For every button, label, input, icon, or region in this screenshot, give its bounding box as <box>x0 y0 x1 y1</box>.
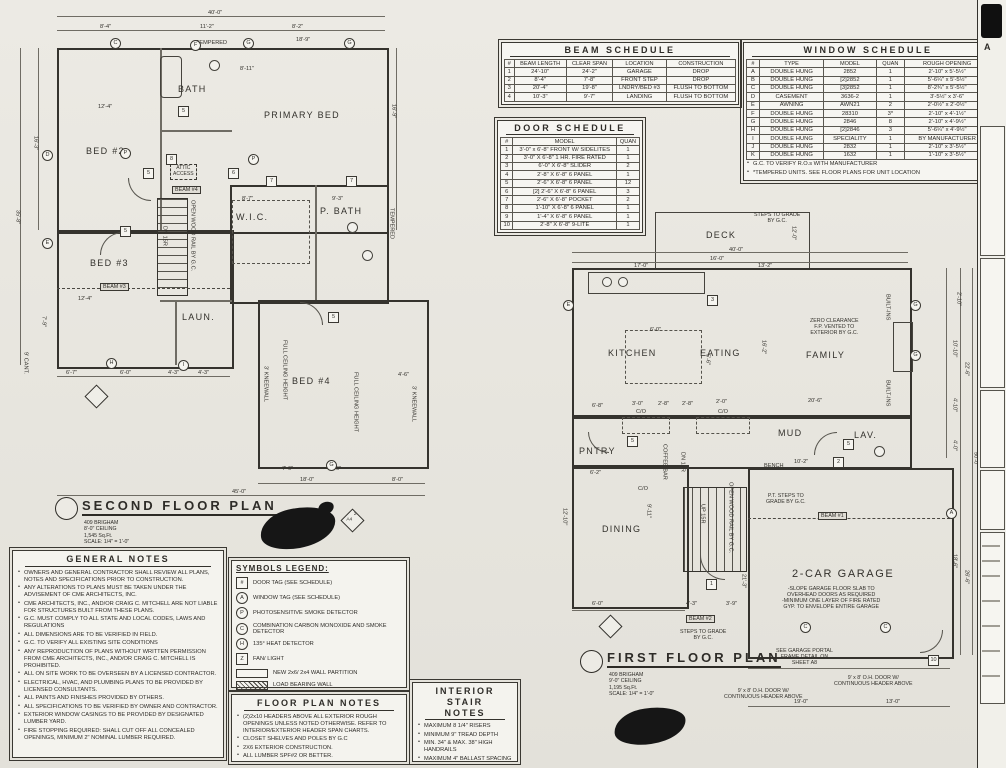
table-cell: H <box>747 126 760 134</box>
plan-label: 2'-10" <box>955 292 961 306</box>
legend-label: PHOTOSENSITIVE SMOKE DETECTOR <box>253 610 358 616</box>
section-marker-number: 2 <box>354 512 357 517</box>
table-cell: 3'-0" x 6'-8" FRONT W/ SIDELITES <box>513 146 617 154</box>
table-cell: FLUSH TO BOTTOM <box>666 84 735 92</box>
room-label-mud: MUD <box>778 428 802 438</box>
table-cell: 1632 <box>824 151 876 159</box>
plan-label: G <box>910 300 921 311</box>
table-cell: 1 <box>617 146 640 154</box>
garage-notes: -SLOPE GARAGE FLOOR SLAB TO OVERHEAD DOO… <box>782 586 880 610</box>
plan-label: E <box>563 300 574 311</box>
plan-label: 10 <box>928 655 939 666</box>
titleblock-text-bar <box>982 600 1000 602</box>
table-row: 6[2] 2'-6" X 6'-8" 6 PANEL3 <box>501 188 640 196</box>
table-cell: 12 <box>617 179 640 187</box>
plan-label: 2'-8" <box>658 401 669 407</box>
table-cell: 19'-8" <box>566 84 612 92</box>
table-cell: DROP <box>666 68 735 76</box>
table-cell: LNDRY/BED #3 <box>613 84 666 92</box>
note-item: G.C. MUST COMPLY TO ALL STATE AND LOCAL … <box>17 616 219 630</box>
table-row: KDOUBLE HUNG163211'-10" x 3'-5½" <box>747 151 990 159</box>
table-row: CDOUBLE HUNG[3]285218'-2¾" x 5'-5½" <box>747 84 990 92</box>
table-cell: 5 <box>501 179 513 187</box>
plan-label: 5 <box>627 436 638 447</box>
door-schedule: DOOR SCHEDULE #MODELQUAN13'-0" x 6'-8" F… <box>497 120 643 233</box>
plan-label: STEPS TO GRADE BY G.C. <box>754 212 800 224</box>
note-item: (2)2x10 HEADERS ABOVE ALL EXTERIOR ROUGH… <box>236 714 402 735</box>
table-row: IDOUBLE HUNGSPECIALITY1BY MANUFACTURER <box>747 135 990 143</box>
table-cell: 2'-8" X 6'-8" 6 PANEL <box>513 171 617 179</box>
interior-stair-notes-list: MAXIMUM 8 1/4" RISERSMINIMUM 9" TREAD DE… <box>417 723 513 763</box>
table-cell: 3'-0" X 6'-8" 1 HR. FIRE RATED <box>513 154 617 162</box>
table-cell: 6'-0" X 6'-8" SLIDER <box>513 162 617 170</box>
table-row: BDOUBLE HUNG[2]285215'-6¼" x 5'-5½" <box>747 76 990 84</box>
plan-label: 13'-0" <box>886 699 900 705</box>
table-cell: 20'-4" <box>514 84 566 92</box>
table-row: 320'-4"19'-8"LNDRY/BED #3FLUSH TO BOTTOM <box>505 84 736 92</box>
note-item: SCALE: 1/4" = 1'-0" <box>609 691 654 697</box>
titleblock-box <box>980 390 1005 468</box>
legend-label: WINDOW TAG (SEE SCHEDULE) <box>253 595 340 601</box>
column-header: CLEAR SPAN <box>566 60 612 68</box>
plan-label: 12'-0" <box>790 226 796 240</box>
table-cell: 2 <box>617 162 640 170</box>
plan-label: 21'-3" <box>740 574 746 588</box>
table-cell: 1'-10" X 6'-8" 6 PANEL <box>513 204 617 212</box>
note-item: EXTERIOR WINDOW CASINGS TO BE PROVIDED B… <box>17 712 219 726</box>
plan-label: 6'-8" <box>592 403 603 409</box>
titleblock-strip: A <box>977 0 1006 768</box>
legend-item: H135° HEAT DETECTOR <box>236 638 402 650</box>
table-cell: 2 <box>501 154 513 162</box>
room-label-kitchen: KITCHEN <box>608 348 657 358</box>
legend-label: FAN/ LIGHT <box>253 656 284 662</box>
table-cell: AWNING <box>759 101 823 109</box>
table-cell: 1 <box>617 171 640 179</box>
note-item: SCALE: 1/4" = 1'-0" <box>84 539 129 545</box>
plan-label: A <box>946 508 957 519</box>
table-cell: 9'-7" <box>566 93 612 101</box>
table-row: DCASEMENT3636-213'-5½" x 3'-6" <box>747 93 990 101</box>
table-cell: DROP <box>666 76 735 84</box>
garage-portal-note: SEE GARAGE PORTAL FRAME DETAIL ON SHEET … <box>776 648 833 666</box>
note-item: ALL PAINTS AND FINISHES PROVIDED BY OTHE… <box>17 695 219 702</box>
table-row: 81'-10" X 6'-8" 6 PANEL1 <box>501 204 640 212</box>
table-cell: 1 <box>505 68 515 76</box>
legend-label: DOOR TAG (SEE SCHEDULE) <box>253 580 332 586</box>
titleblock-box <box>980 532 1005 704</box>
plan-label: C/O <box>638 486 648 492</box>
column-header: TYPE <box>759 60 823 68</box>
table-cell: 3 <box>501 162 513 170</box>
plan-label: OPEN WOOD RAIL BY G.C. <box>727 482 733 553</box>
note-item: ALL DIMENSIONS ARE TO BE VERIFIED IN FIE… <box>17 632 219 639</box>
floor-plan-notes-title: FLOOR PLAN NOTES <box>244 698 394 711</box>
plan-label: 13'-2" <box>758 263 772 269</box>
table-cell: 2 <box>617 196 640 204</box>
symbols-legend-list: #DOOR TAG (SEE SCHEDULE)AWINDOW TAG (SEE… <box>236 577 402 690</box>
note-item: ELECTRICAL, HVAC, AND PLUMBING PLANS TO … <box>17 680 219 694</box>
table-cell: 7'-8" <box>566 76 612 84</box>
table-row: 410'-3"9'-7"LANDINGFLUSH TO BOTTOM <box>505 93 736 101</box>
titleblock-text-bar <box>982 560 1000 562</box>
plan-label: C <box>800 622 811 633</box>
first-floor-info: 409 BRIGHAM9'-0" CEILING1,195 Sq.Ft.SCAL… <box>609 672 654 697</box>
column-header: QUAN <box>876 60 905 68</box>
table-cell: AWN21 <box>824 101 876 109</box>
fireplace-note: ZERO CLEARANCE F.P. VENTED TO EXTERIOR B… <box>810 318 859 336</box>
note-item: ANY REPRODUCTION OF PLANS WITHOUT WRITTE… <box>17 649 219 670</box>
plan-label: 2 <box>833 457 844 468</box>
table-cell: GARAGE <box>613 68 666 76</box>
table-cell: DOUBLE HUNG <box>759 76 823 84</box>
beam-schedule-title: BEAM SCHEDULE <box>510 44 730 57</box>
table-row: 91'-4" X 6'-8" 6 PANEL1 <box>501 213 640 221</box>
note-item: FIRE STOPPING REQUIRED: SHALL CUT OFF AL… <box>17 728 219 742</box>
table-cell: [3]2852 <box>824 84 876 92</box>
note-item: OWNERS AND GENERAL CONTRACTOR SHALL REVI… <box>17 570 219 584</box>
plan-label: G <box>910 350 921 361</box>
titleblock-box <box>980 258 1005 388</box>
table-cell: 2 <box>876 101 905 109</box>
architect-logo <box>981 4 1002 38</box>
note-item: MAXIMUM 8 1/4" RISERS <box>417 723 513 730</box>
table-cell: 2846 <box>824 118 876 126</box>
table-cell: C <box>747 84 760 92</box>
table-cell: 6 <box>501 188 513 196</box>
plan-label: 6'-2" <box>590 470 601 476</box>
table-row: HDOUBLE HUNG[2]284635'-6¼" x 4'-9½" <box>747 126 990 134</box>
table-row: 13'-0" x 6'-8" FRONT W/ SIDELITES1 <box>501 146 640 154</box>
table-cell: E <box>747 101 760 109</box>
note-item: G.C. TO VERIFY R.O.s WITH MANUFACTURER <box>746 161 990 168</box>
plan-label: STEPS TO GRADE BY G.C. <box>680 629 726 641</box>
table-cell: 2'-6" X 6'-8" 6 PANEL <box>513 179 617 187</box>
table-cell: 1 <box>876 151 905 159</box>
plan-label: 17'-0" <box>634 263 648 269</box>
oh-door-note: 9' x 8' O.H. DOOR W/ CONTINUOUS HEADER A… <box>724 688 803 700</box>
plan-label: COFFEE BAR <box>661 444 667 480</box>
symbols-legend-title: SYMBOLS LEGEND: <box>236 564 402 573</box>
general-notes: GENERAL NOTES OWNERS AND GENERAL CONTRAC… <box>12 550 224 758</box>
titleblock-box <box>980 470 1005 530</box>
table-cell: 1 <box>876 135 905 143</box>
legend-label: NEW 2x6/ 2x4 WALL PARTITION <box>273 670 357 676</box>
plan-label: 18'-6" <box>951 554 957 568</box>
plan-label: 5 <box>843 439 854 450</box>
floor-plan-notes: FLOOR PLAN NOTES (2)2x10 HEADERS ABOVE A… <box>231 694 407 762</box>
beam-schedule: BEAM SCHEDULE #BEAM LENGTHCLEAR SPANLOCA… <box>501 42 739 105</box>
plan-label: 26'-6" <box>963 570 969 584</box>
note-item: CME ARCHITECTS, INC., AND/OR CRAIG C. MI… <box>17 601 219 615</box>
fan-light-symbol: Z <box>236 653 248 665</box>
general-notes-title: GENERAL NOTES <box>25 554 211 567</box>
co-smoke-detector-symbol: C <box>236 623 248 635</box>
table-cell: 2'-6" X 6'-8" POCKET <box>513 196 617 204</box>
plan-label: 4'-3" <box>686 601 697 607</box>
table-row: ADOUBLE HUNG285212'-10" x 5'-5½" <box>747 68 990 76</box>
table-cell: 10 <box>501 221 513 229</box>
plan-label: C/O <box>718 409 728 415</box>
column-header: MODEL <box>513 138 617 146</box>
plan-label: 22'-6" <box>963 362 969 376</box>
plan-label: 1 <box>706 579 717 590</box>
plan-label: UP 15R <box>699 504 705 524</box>
table-cell: 3636-2 <box>824 93 876 101</box>
symbols-legend: SYMBOLS LEGEND: #DOOR TAG (SEE SCHEDULE)… <box>231 560 407 688</box>
legend-item: LOAD BEARING WALL <box>236 681 402 690</box>
table-row: EAWNINGAWN2122'-0½" x 2'-0½" <box>747 101 990 109</box>
column-header: BEAM LENGTH <box>514 60 566 68</box>
table-cell: 8 <box>876 118 905 126</box>
note-item: ALL SPECIFICATIONS TO BE VERIFIED BY OWN… <box>17 704 219 711</box>
table-cell: LANDING <box>613 93 666 101</box>
column-header: # <box>501 138 513 146</box>
column-header: MODEL <box>824 60 876 68</box>
table-row: 52'-6" X 6'-8" 6 PANEL12 <box>501 179 640 187</box>
room-label-pantry: PNTRY <box>579 446 616 456</box>
titleblock-letter: A <box>984 42 991 52</box>
plan-label: BUILT-INS <box>884 380 890 406</box>
note-item: MAXIMUM 4" BALLAST SPACING <box>417 756 513 763</box>
door-tag-symbol: # <box>236 577 248 589</box>
room-label-dining: DINING <box>602 524 641 534</box>
table-cell: 2'-8" X 6'-8" 9-LITE <box>513 221 617 229</box>
plan-label: 6'-0" <box>592 601 603 607</box>
drawing-sheet: BED #2BATHPRIMARY BEDW.I.C.P. BATHBED #3… <box>0 0 1006 768</box>
plan-label: BENCH <box>764 463 784 469</box>
table-row: 36'-0" X 6'-8" SLIDER2 <box>501 162 640 170</box>
table-cell: CASEMENT <box>759 93 823 101</box>
note-item: *TEMPERED UNITS. SEE FLOOR PLANS FOR UNI… <box>746 170 990 177</box>
table-cell: 10'-3" <box>514 93 566 101</box>
second-floor-title: SECOND FLOOR PLAN <box>82 498 277 516</box>
interior-stair-notes-title: INTERIOR STAIR NOTES <box>425 686 505 720</box>
plan-label: 19'-0" <box>794 699 808 705</box>
titleblock-text-bar <box>982 625 1000 627</box>
beam1-label: BEAM #1 <box>818 512 847 520</box>
table-cell: 1 <box>876 93 905 101</box>
titleblock-text-bar <box>982 675 1000 677</box>
plan-label: 20'-6" <box>808 398 822 404</box>
plan-label: 16'-0" <box>710 256 724 262</box>
plan-label: 4'-0" <box>951 440 957 451</box>
table-cell: 1 <box>617 221 640 229</box>
plan-label: 2'-0" <box>716 399 727 405</box>
legend-item: AWINDOW TAG (SEE SCHEDULE) <box>236 592 402 604</box>
window-schedule-footnotes: G.C. TO VERIFY R.O.s WITH MANUFACTURER*T… <box>746 161 990 177</box>
interior-stair-notes: INTERIOR STAIR NOTES MAXIMUM 8 1/4" RISE… <box>412 682 518 762</box>
legend-item: NEW 2x6/ 2x4 WALL PARTITION <box>236 669 402 678</box>
table-cell: DOUBLE HUNG <box>759 143 823 151</box>
note-item: G.C. TO VERIFY ALL EXISTING SITE CONDITI… <box>17 640 219 647</box>
note-item: MINIMUM 9" TREAD DEPTH <box>417 732 513 739</box>
room-label-deck: DECK <box>706 230 736 240</box>
smoke-detector-symbol: P <box>236 607 248 619</box>
room-label-garage: 2-CAR GARAGE <box>792 568 894 581</box>
beam2-label: BEAM #2 <box>686 615 715 623</box>
window-schedule-table: #TYPEMODELQUANROUGH OPENINGADOUBLE HUNG2… <box>746 59 990 160</box>
table-row: GDOUBLE HUNG284682'-10" x 4'-9½" <box>747 118 990 126</box>
table-cell: SPECIALITY <box>824 135 876 143</box>
table-cell: 9 <box>501 213 513 221</box>
note-item: ANY ALTERATIONS TO PLANS MUST BE TAKEN U… <box>17 585 219 599</box>
heat-detector-symbol: H <box>236 638 248 650</box>
plan-label: 3'-0" <box>632 401 643 407</box>
plan-label: 3'-9" <box>726 601 737 607</box>
table-cell: DOUBLE HUNG <box>759 68 823 76</box>
legend-item: PPHOTOSENSITIVE SMOKE DETECTOR <box>236 607 402 619</box>
table-cell: 1 <box>876 84 905 92</box>
window-schedule: WINDOW SCHEDULE #TYPEMODELQUANROUGH OPEN… <box>743 42 993 181</box>
table-row: 102'-8" X 6'-8" 9-LITE1 <box>501 221 640 229</box>
table-cell: 24'-2" <box>566 68 612 76</box>
window-schedule-title: WINDOW SCHEDULE <box>752 44 984 57</box>
note-item: ALL LUMBER SPF#2 OR BETTER. <box>236 753 402 760</box>
plan-label: C <box>880 622 891 633</box>
table-cell: 4 <box>501 171 513 179</box>
legend-label: LOAD BEARING WALL <box>273 682 333 688</box>
section-marker-sheet: A4 <box>346 518 352 523</box>
table-row: JDOUBLE HUNG283212'-10" x 3'-5½" <box>747 143 990 151</box>
table-cell: 28310 <box>824 110 876 118</box>
table-cell: 2852 <box>824 68 876 76</box>
plan-label: BUILT-INS <box>884 294 890 320</box>
note-item: ALL ON SITE WORK TO BE OVERSEEN BY A LIC… <box>17 671 219 678</box>
table-cell: DOUBLE HUNG <box>759 135 823 143</box>
titleblock-text-bar <box>982 545 1000 547</box>
table-cell: [2]2852 <box>824 76 876 84</box>
titleblock-box <box>980 126 1005 256</box>
table-cell: FRONT STEP <box>613 76 666 84</box>
column-header: # <box>505 60 515 68</box>
second-floor-info: 409 BRIGHAM8'-0" CEILING1,545 Sq.Ft.SCAL… <box>84 520 129 545</box>
plan-label: 6'-0" <box>650 327 661 333</box>
plan-label: C/O <box>636 409 646 415</box>
door-schedule-title: DOOR SCHEDULE <box>506 122 634 135</box>
note-item: MIN. 34" & MAX. 38" HIGH HANDRAILS <box>417 740 513 754</box>
table-cell: 3 <box>876 126 905 134</box>
plan-label: 16'-2" <box>760 340 766 354</box>
column-header: QUAN <box>617 138 640 146</box>
table-cell: 2 <box>505 76 515 84</box>
legend-label: COMBINATION CARBON MONOXIDE AND SMOKE DE… <box>253 623 402 636</box>
titleblock-text-bar <box>982 575 1000 577</box>
plan-label: 9'-11" <box>645 504 651 518</box>
table-cell: F <box>747 110 760 118</box>
plan-label: P.T. STEPS TO GRADE BY G.C. <box>766 493 806 505</box>
table-cell: 1 <box>876 143 905 151</box>
column-header: # <box>747 60 760 68</box>
legend-item: ZFAN/ LIGHT <box>236 653 402 665</box>
general-notes-list: OWNERS AND GENERAL CONTRACTOR SHALL REVI… <box>17 570 219 742</box>
table-cell: 1 <box>876 76 905 84</box>
floor-plan-notes-list: (2)2x10 HEADERS ABOVE ALL EXTERIOR ROUGH… <box>236 714 402 761</box>
table-row: 28'-4"7'-8"FRONT STEPDROP <box>505 76 736 84</box>
table-row: 124'-10"24'-2"GARAGEDROP <box>505 68 736 76</box>
table-cell: 3 <box>505 84 515 92</box>
table-row: 23'-0" X 6'-8" 1 HR. FIRE RATED1 <box>501 154 640 162</box>
table-cell: B <box>747 76 760 84</box>
plan-label: DN 14R <box>679 452 685 472</box>
plan-label: 4'-10" <box>951 398 957 412</box>
table-cell: DOUBLE HUNG <box>759 110 823 118</box>
table-cell: DOUBLE HUNG <box>759 151 823 159</box>
titleblock-text-bar <box>982 650 1000 652</box>
title-bubble <box>580 650 603 673</box>
wall-partition-symbol <box>236 669 268 678</box>
load-bearing-wall-symbol <box>236 681 268 690</box>
plan-label: 3 <box>707 295 718 306</box>
table-cell: 3 <box>617 188 640 196</box>
note-item: 2X6 EXTERIOR CONSTRUCTION. <box>236 745 402 752</box>
table-cell: [2] 2'-6" X 6'-8" 6 PANEL <box>513 188 617 196</box>
note-item: CLOSET SHELVES AND POLES BY G.C <box>236 736 402 743</box>
table-cell: DOUBLE HUNG <box>759 118 823 126</box>
table-cell: 1 <box>617 213 640 221</box>
table-cell: 4 <box>505 93 515 101</box>
table-cell: FLUSH TO BOTTOM <box>666 93 735 101</box>
table-cell: 7 <box>501 196 513 204</box>
room-label-lav: LAV. <box>854 430 877 440</box>
table-row: FDOUBLE HUNG283103*2'-10" x 4'-1½" <box>747 110 990 118</box>
column-header: LOCATION <box>613 60 666 68</box>
table-cell: 2832 <box>824 143 876 151</box>
table-cell: D <box>747 93 760 101</box>
column-header: CONSTRUCTION <box>666 60 735 68</box>
table-cell: [2]2846 <box>824 126 876 134</box>
plan-label: 12'-10" <box>561 508 567 525</box>
table-cell: 1 <box>501 146 513 154</box>
legend-item: CCOMBINATION CARBON MONOXIDE AND SMOKE D… <box>236 623 402 636</box>
table-cell: 1'-4" X 6'-8" 6 PANEL <box>513 213 617 221</box>
table-row: 72'-6" X 6'-8" POCKET2 <box>501 196 640 204</box>
table-cell: 3* <box>876 110 905 118</box>
table-cell: DOUBLE HUNG <box>759 126 823 134</box>
table-row: 42'-8" X 6'-8" 6 PANEL1 <box>501 171 640 179</box>
title-bubble <box>55 497 78 520</box>
table-cell: 1 <box>617 154 640 162</box>
room-label-family: FAMILY <box>806 350 845 360</box>
plan-label: 2'-8" <box>682 401 693 407</box>
door-schedule-table: #MODELQUAN13'-0" x 6'-8" FRONT W/ SIDELI… <box>500 137 640 230</box>
plan-label: 40'-0" <box>729 247 743 253</box>
beam-schedule-table: #BEAM LENGTHCLEAR SPANLOCATIONCONSTRUCTI… <box>504 59 736 102</box>
window-tag-symbol: A <box>236 592 248 604</box>
plan-label: 5'-6" <box>704 354 710 365</box>
table-cell: 8'-4" <box>514 76 566 84</box>
first-floor-title: FIRST FLOOR PLAN <box>607 650 781 668</box>
table-cell: I <box>747 135 760 143</box>
table-cell: 1 <box>876 68 905 76</box>
table-cell: 8 <box>501 204 513 212</box>
table-cell: A <box>747 68 760 76</box>
plan-label: 10'-2" <box>794 459 808 465</box>
table-cell: J <box>747 143 760 151</box>
oh-door-note: 9' x 8' O.H. DOOR W/ CONTINUOUS HEADER A… <box>834 675 913 687</box>
table-cell: 24'-10" <box>514 68 566 76</box>
table-cell: K <box>747 151 760 159</box>
table-cell: 1 <box>617 204 640 212</box>
legend-item: #DOOR TAG (SEE SCHEDULE) <box>236 577 402 589</box>
table-cell: G <box>747 118 760 126</box>
table-cell: DOUBLE HUNG <box>759 84 823 92</box>
plan-label: 10'-10" <box>951 340 957 357</box>
legend-label: 135° HEAT DETECTOR <box>253 641 314 647</box>
